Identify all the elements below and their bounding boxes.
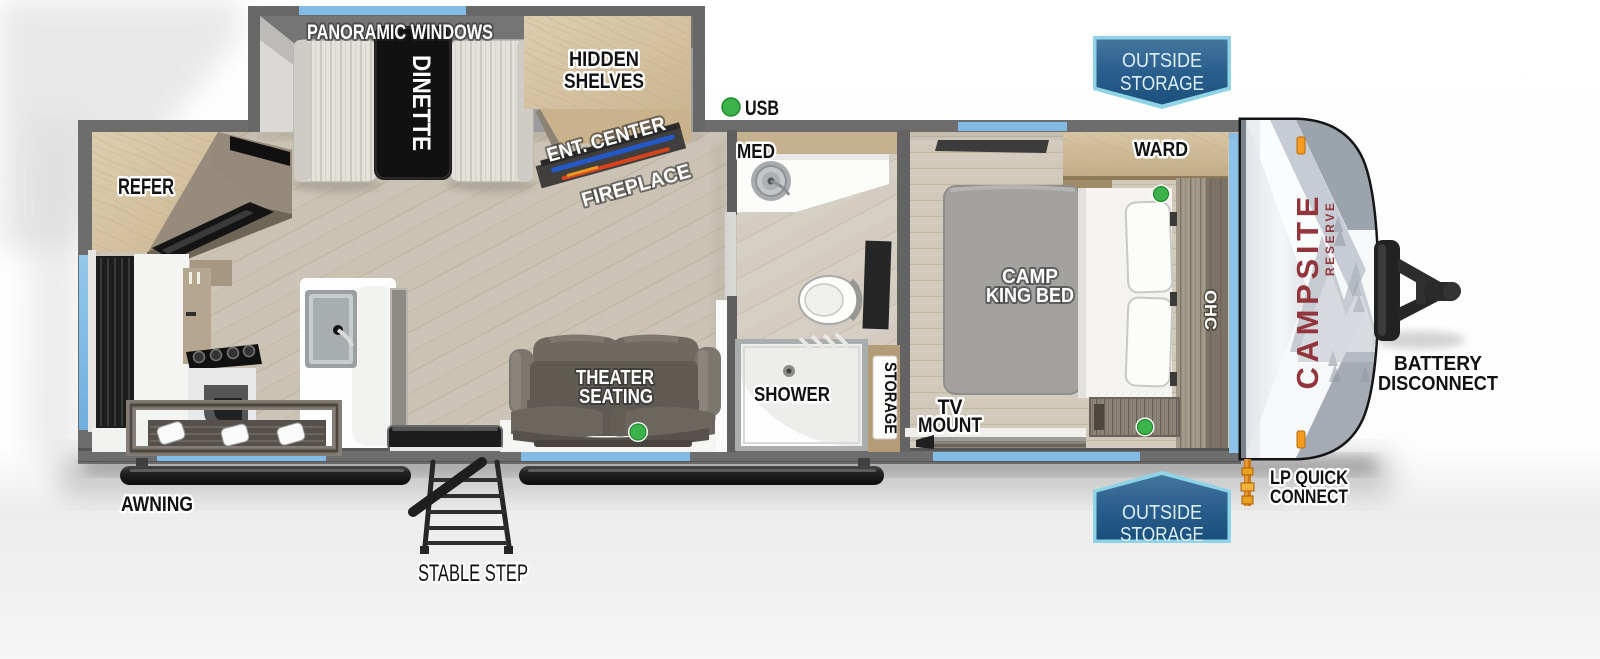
svg-text:SHOWER: SHOWER [754, 384, 830, 406]
svg-text:DISCONNECT: DISCONNECT [1378, 373, 1498, 395]
svg-text:BATTERY: BATTERY [1394, 353, 1483, 375]
svg-text:OUTSIDE: OUTSIDE [1122, 502, 1202, 524]
svg-text:PANORAMIC WINDOWS: PANORAMIC WINDOWS [307, 21, 493, 44]
svg-text:OHC: OHC [1201, 290, 1220, 330]
svg-text:CAMPSITE: CAMPSITE [1290, 195, 1325, 390]
svg-text:LP QUICK: LP QUICK [1270, 468, 1348, 489]
svg-text:REFER: REFER [118, 174, 174, 199]
svg-text:MOUNT: MOUNT [918, 414, 982, 437]
svg-text:WARD: WARD [1134, 139, 1188, 161]
svg-text:STORAGE: STORAGE [1120, 524, 1204, 546]
svg-text:KING BED: KING BED [986, 285, 1074, 307]
svg-text:HIDDEN: HIDDEN [569, 48, 639, 71]
svg-text:SEATING: SEATING [579, 386, 653, 408]
svg-text:STABLE STEP: STABLE STEP [418, 560, 528, 587]
svg-text:USB: USB [745, 97, 779, 120]
svg-text:STORAGE: STORAGE [1120, 73, 1204, 95]
svg-text:SHELVES: SHELVES [564, 70, 644, 93]
svg-text:OUTSIDE: OUTSIDE [1122, 50, 1202, 72]
svg-text:CONNECT: CONNECT [1270, 487, 1348, 508]
svg-text:AWNING: AWNING [121, 493, 193, 516]
svg-text:RESERVE: RESERVE [1323, 200, 1337, 276]
svg-text:STORAGE: STORAGE [881, 362, 900, 434]
svg-text:DINETTE: DINETTE [407, 55, 435, 151]
svg-text:MED: MED [737, 141, 775, 163]
